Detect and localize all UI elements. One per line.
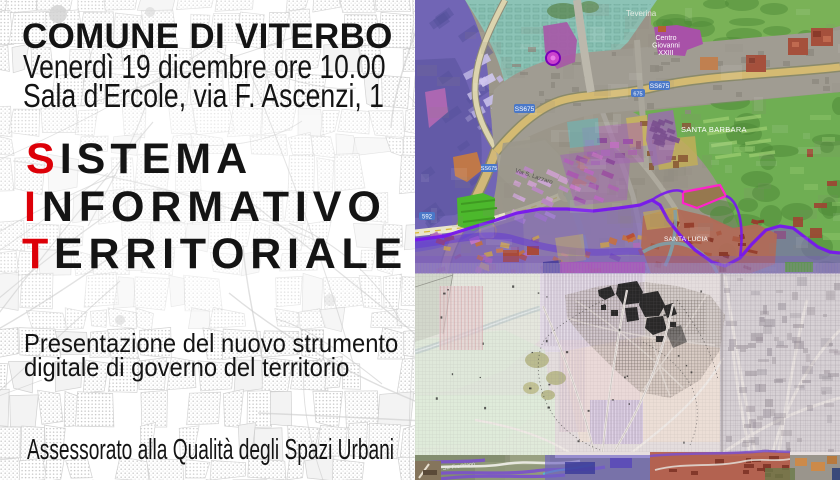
svg-text:Centro: Centro — [655, 35, 676, 42]
svg-text:SS675: SS675 — [481, 166, 498, 172]
svg-text:592: 592 — [422, 215, 433, 221]
svg-text:SANTA BARBARA: SANTA BARBARA — [681, 125, 747, 134]
svg-text:SS675: SS675 — [515, 106, 535, 113]
svg-text:XXIII: XXIII — [658, 50, 673, 57]
svg-text:SS675: SS675 — [650, 83, 670, 90]
svg-text:Teverina: Teverina — [626, 9, 657, 18]
svg-text:SANTA LUCIA: SANTA LUCIA — [664, 236, 708, 243]
svg-text:675: 675 — [633, 92, 642, 98]
svg-text:Giovanni: Giovanni — [652, 43, 680, 50]
